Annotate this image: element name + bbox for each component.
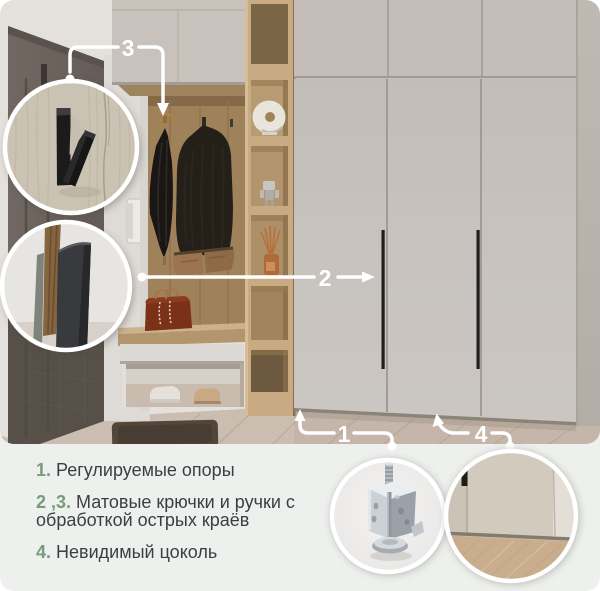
svg-text:3: 3 [122, 35, 135, 61]
svg-text:1: 1 [338, 421, 351, 447]
svg-text:4: 4 [475, 421, 488, 447]
svg-text:2: 2 [319, 265, 332, 291]
